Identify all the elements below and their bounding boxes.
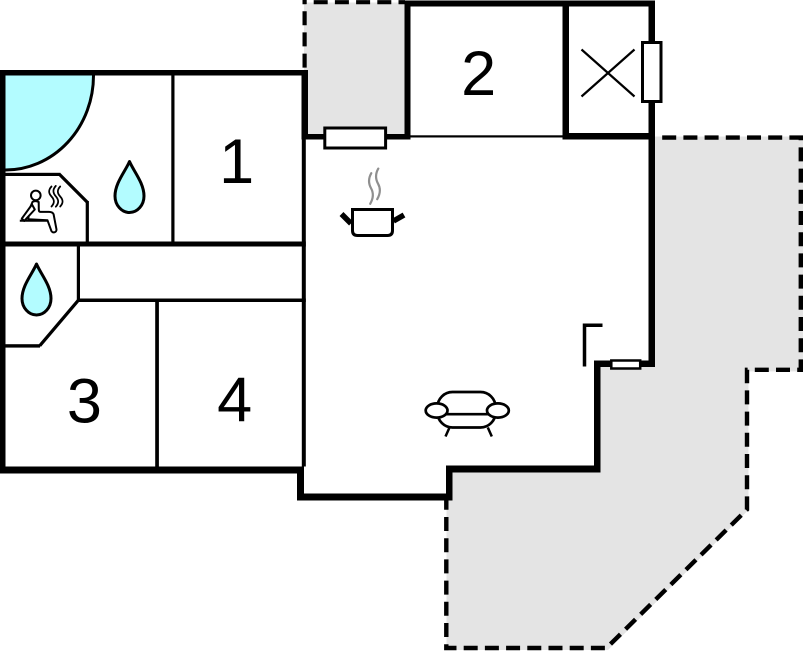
svg-text:3: 3 (67, 367, 102, 437)
svg-text:2: 2 (461, 39, 496, 109)
svg-text:1: 1 (219, 127, 254, 197)
svg-text:4: 4 (217, 366, 252, 436)
